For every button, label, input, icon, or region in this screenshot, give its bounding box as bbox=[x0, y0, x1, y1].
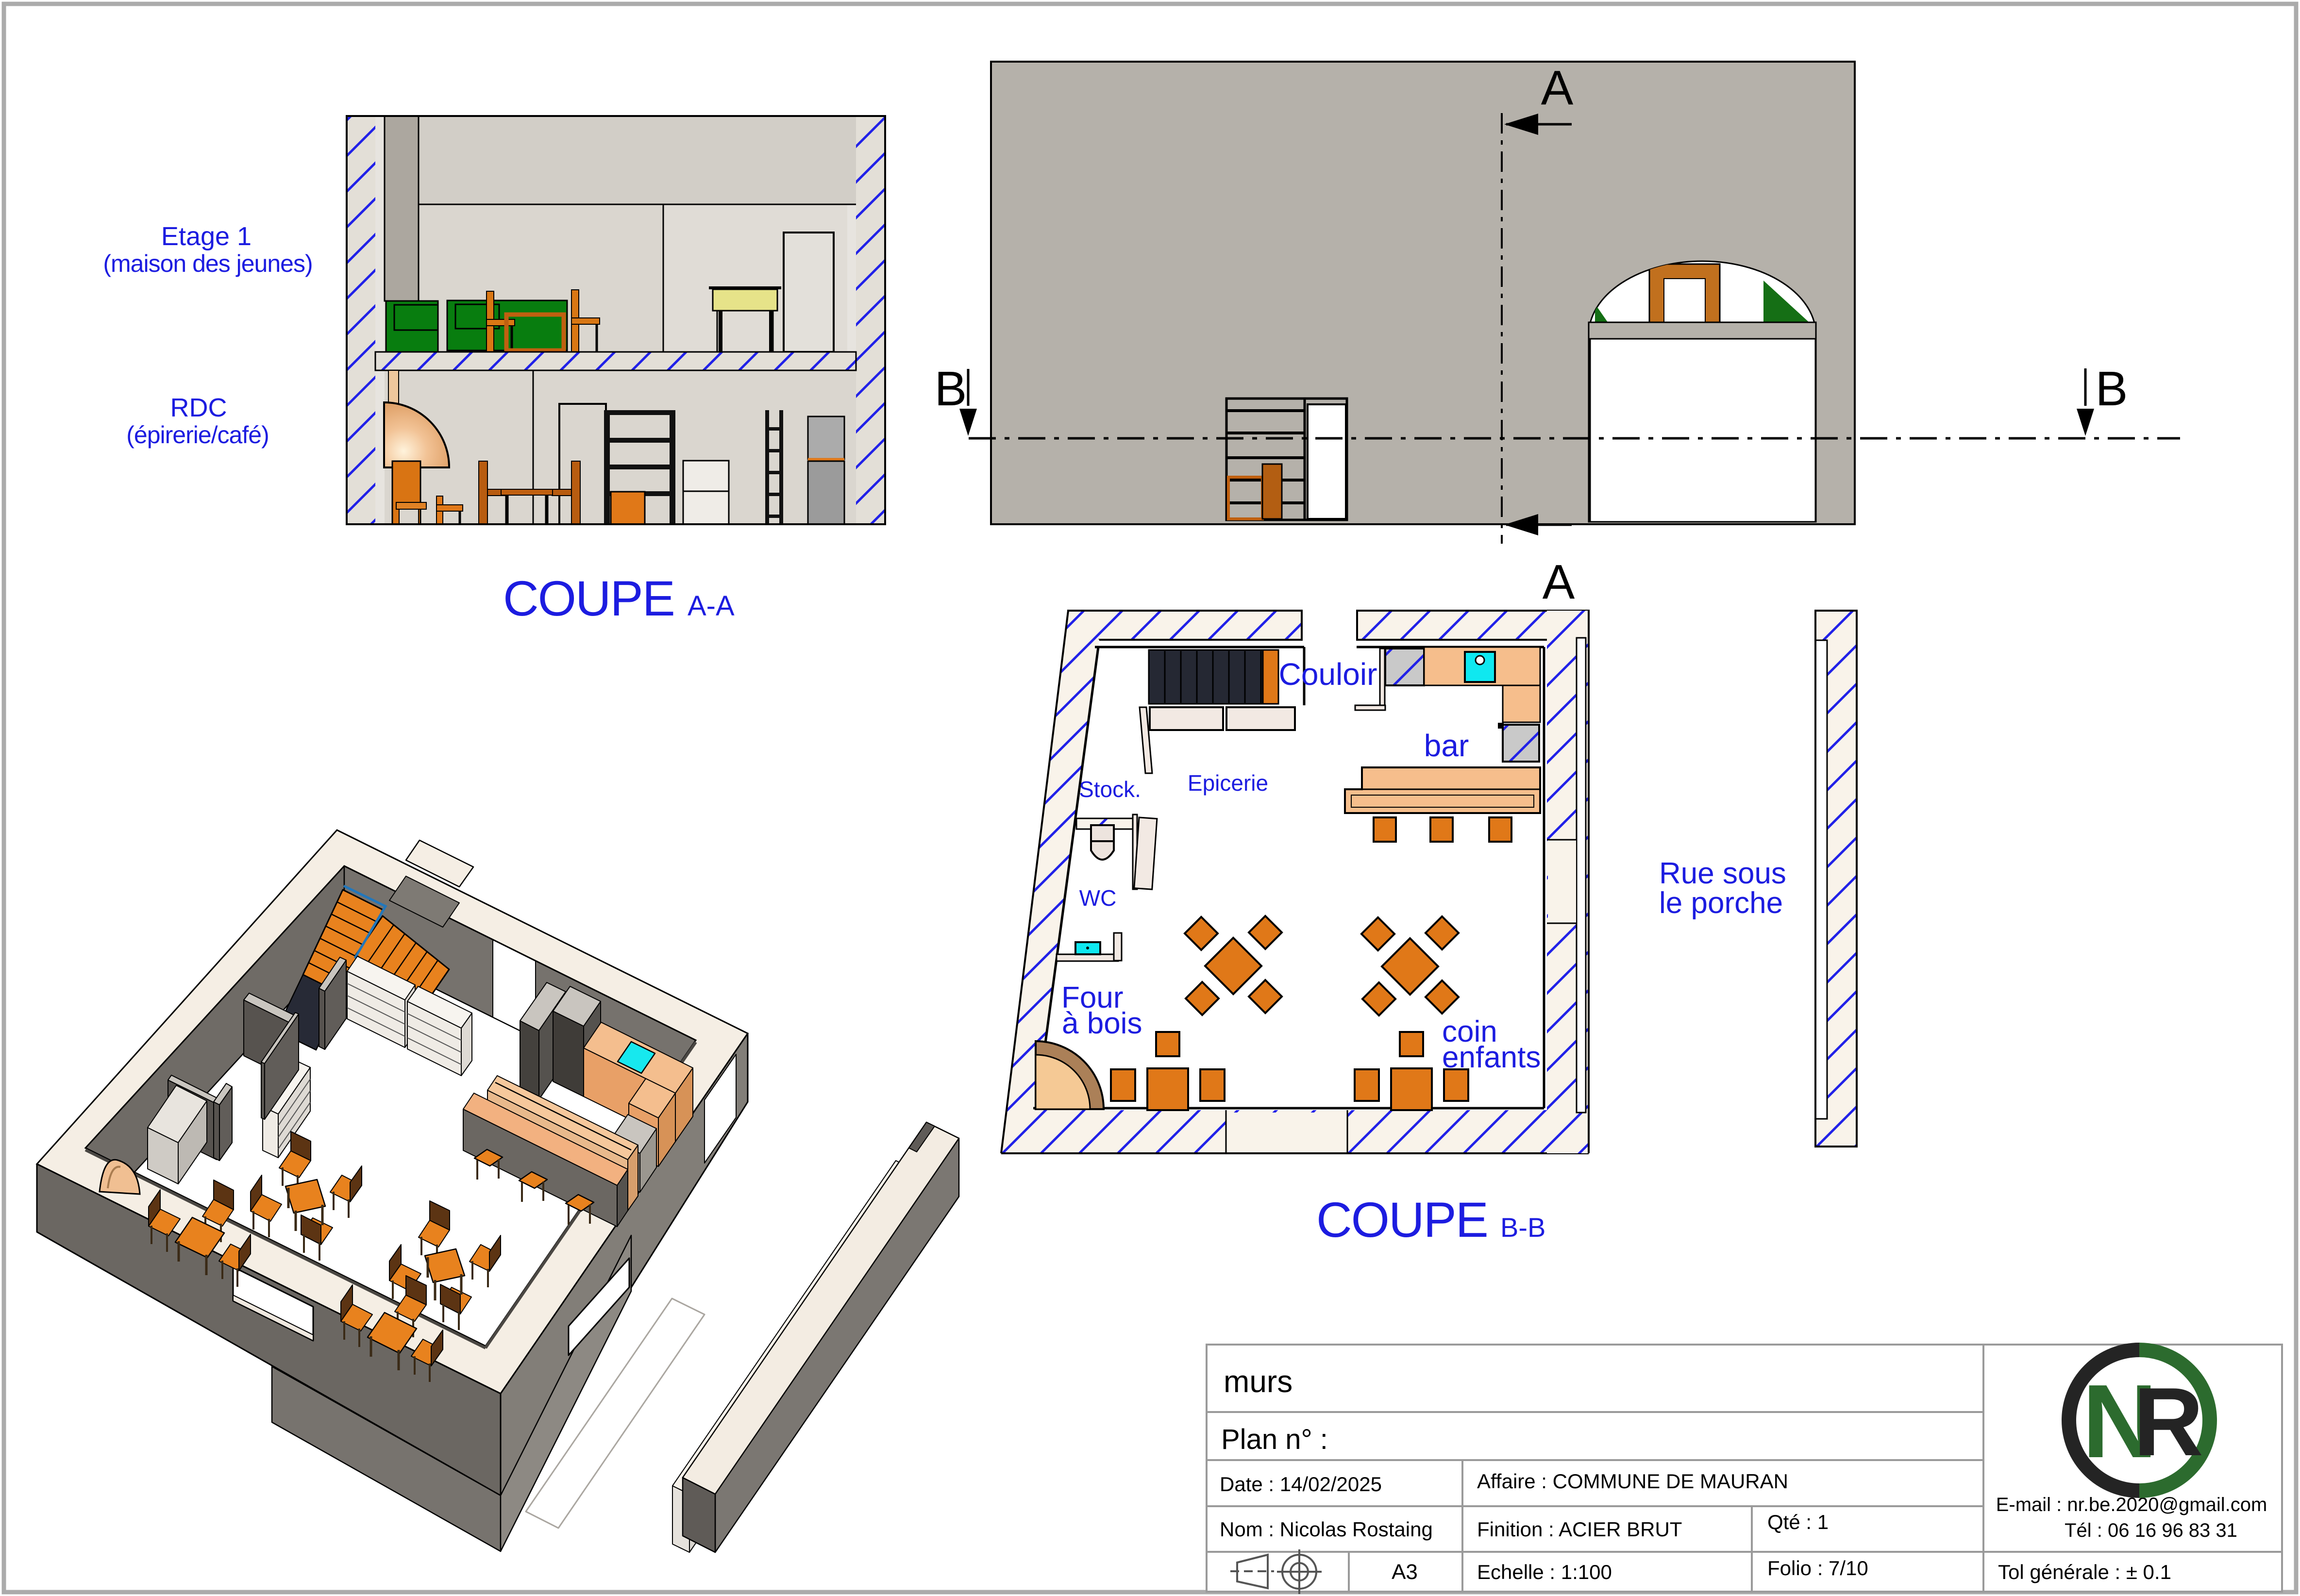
svg-text:Echelle : 1:100: Echelle : 1:100 bbox=[1477, 1561, 1612, 1583]
svg-text:COUPE: COUPE bbox=[1316, 1192, 1488, 1247]
svg-text:B: B bbox=[2096, 362, 2128, 416]
svg-text:Finition : ACIER BRUT: Finition : ACIER BRUT bbox=[1477, 1518, 1682, 1541]
svg-text:enfants: enfants bbox=[1442, 1041, 1541, 1074]
svg-text:Couloir: Couloir bbox=[1279, 657, 1377, 692]
svg-text:RDC: RDC bbox=[170, 393, 227, 422]
svg-text:Affaire : COMMUNE DE MAURAN: Affaire : COMMUNE DE MAURAN bbox=[1477, 1470, 1788, 1493]
svg-text:Stock.: Stock. bbox=[1079, 777, 1141, 802]
svg-text:Qté : 1: Qté : 1 bbox=[1767, 1511, 1829, 1533]
svg-text:R: R bbox=[2133, 1368, 2203, 1476]
svg-text:Folio : 7/10: Folio : 7/10 bbox=[1767, 1557, 1868, 1579]
svg-text:WC: WC bbox=[1079, 885, 1117, 911]
svg-text:(épirerie/café): (épirerie/café) bbox=[126, 421, 269, 449]
svg-text:murs: murs bbox=[1224, 1364, 1293, 1399]
svg-text:Nom : Nicolas Rostaing: Nom : Nicolas Rostaing bbox=[1220, 1518, 1433, 1541]
svg-text:COUPE: COUPE bbox=[503, 571, 674, 626]
svg-text:Etage 1: Etage 1 bbox=[161, 222, 252, 251]
svg-text:Rue sous: Rue sous bbox=[1659, 857, 1786, 890]
svg-text:A-A: A-A bbox=[688, 590, 735, 622]
svg-text:B-B: B-B bbox=[1500, 1212, 1545, 1243]
svg-text:(maison des jeunes): (maison des jeunes) bbox=[103, 250, 312, 277]
svg-text:Tél : 06 16 96 83 31: Tél : 06 16 96 83 31 bbox=[2065, 1520, 2237, 1541]
svg-text:Plan n° :: Plan n° : bbox=[1221, 1424, 1328, 1455]
svg-text:le porche: le porche bbox=[1659, 886, 1783, 920]
svg-text:bar: bar bbox=[1424, 728, 1469, 763]
svg-text:B: B bbox=[935, 362, 967, 416]
svg-text:A: A bbox=[1543, 555, 1575, 609]
svg-text:Date : 14/02/2025: Date : 14/02/2025 bbox=[1220, 1473, 1382, 1496]
svg-text:A3: A3 bbox=[1392, 1560, 1418, 1584]
svg-text:à bois: à bois bbox=[1062, 1007, 1142, 1040]
svg-text:A: A bbox=[1541, 61, 1574, 115]
svg-text:Epicerie: Epicerie bbox=[1188, 770, 1268, 796]
svg-text:Tol générale : ± 0.1: Tol générale : ± 0.1 bbox=[1998, 1561, 2171, 1583]
